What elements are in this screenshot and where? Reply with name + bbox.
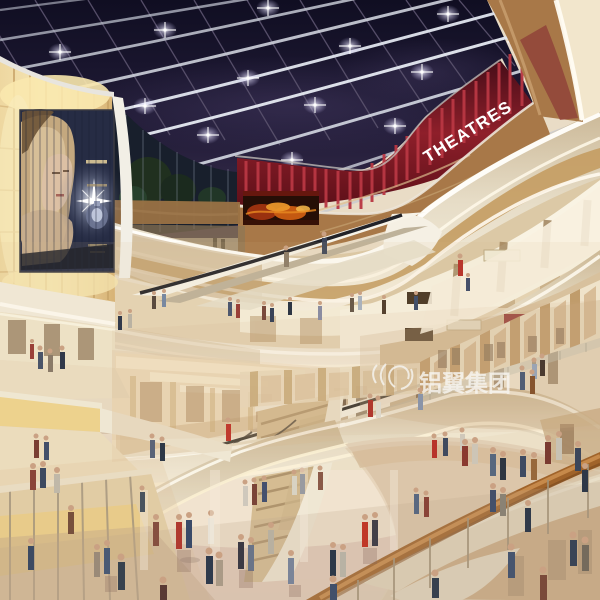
- svg-text:铝翼集团: 铝翼集团: [419, 370, 511, 396]
